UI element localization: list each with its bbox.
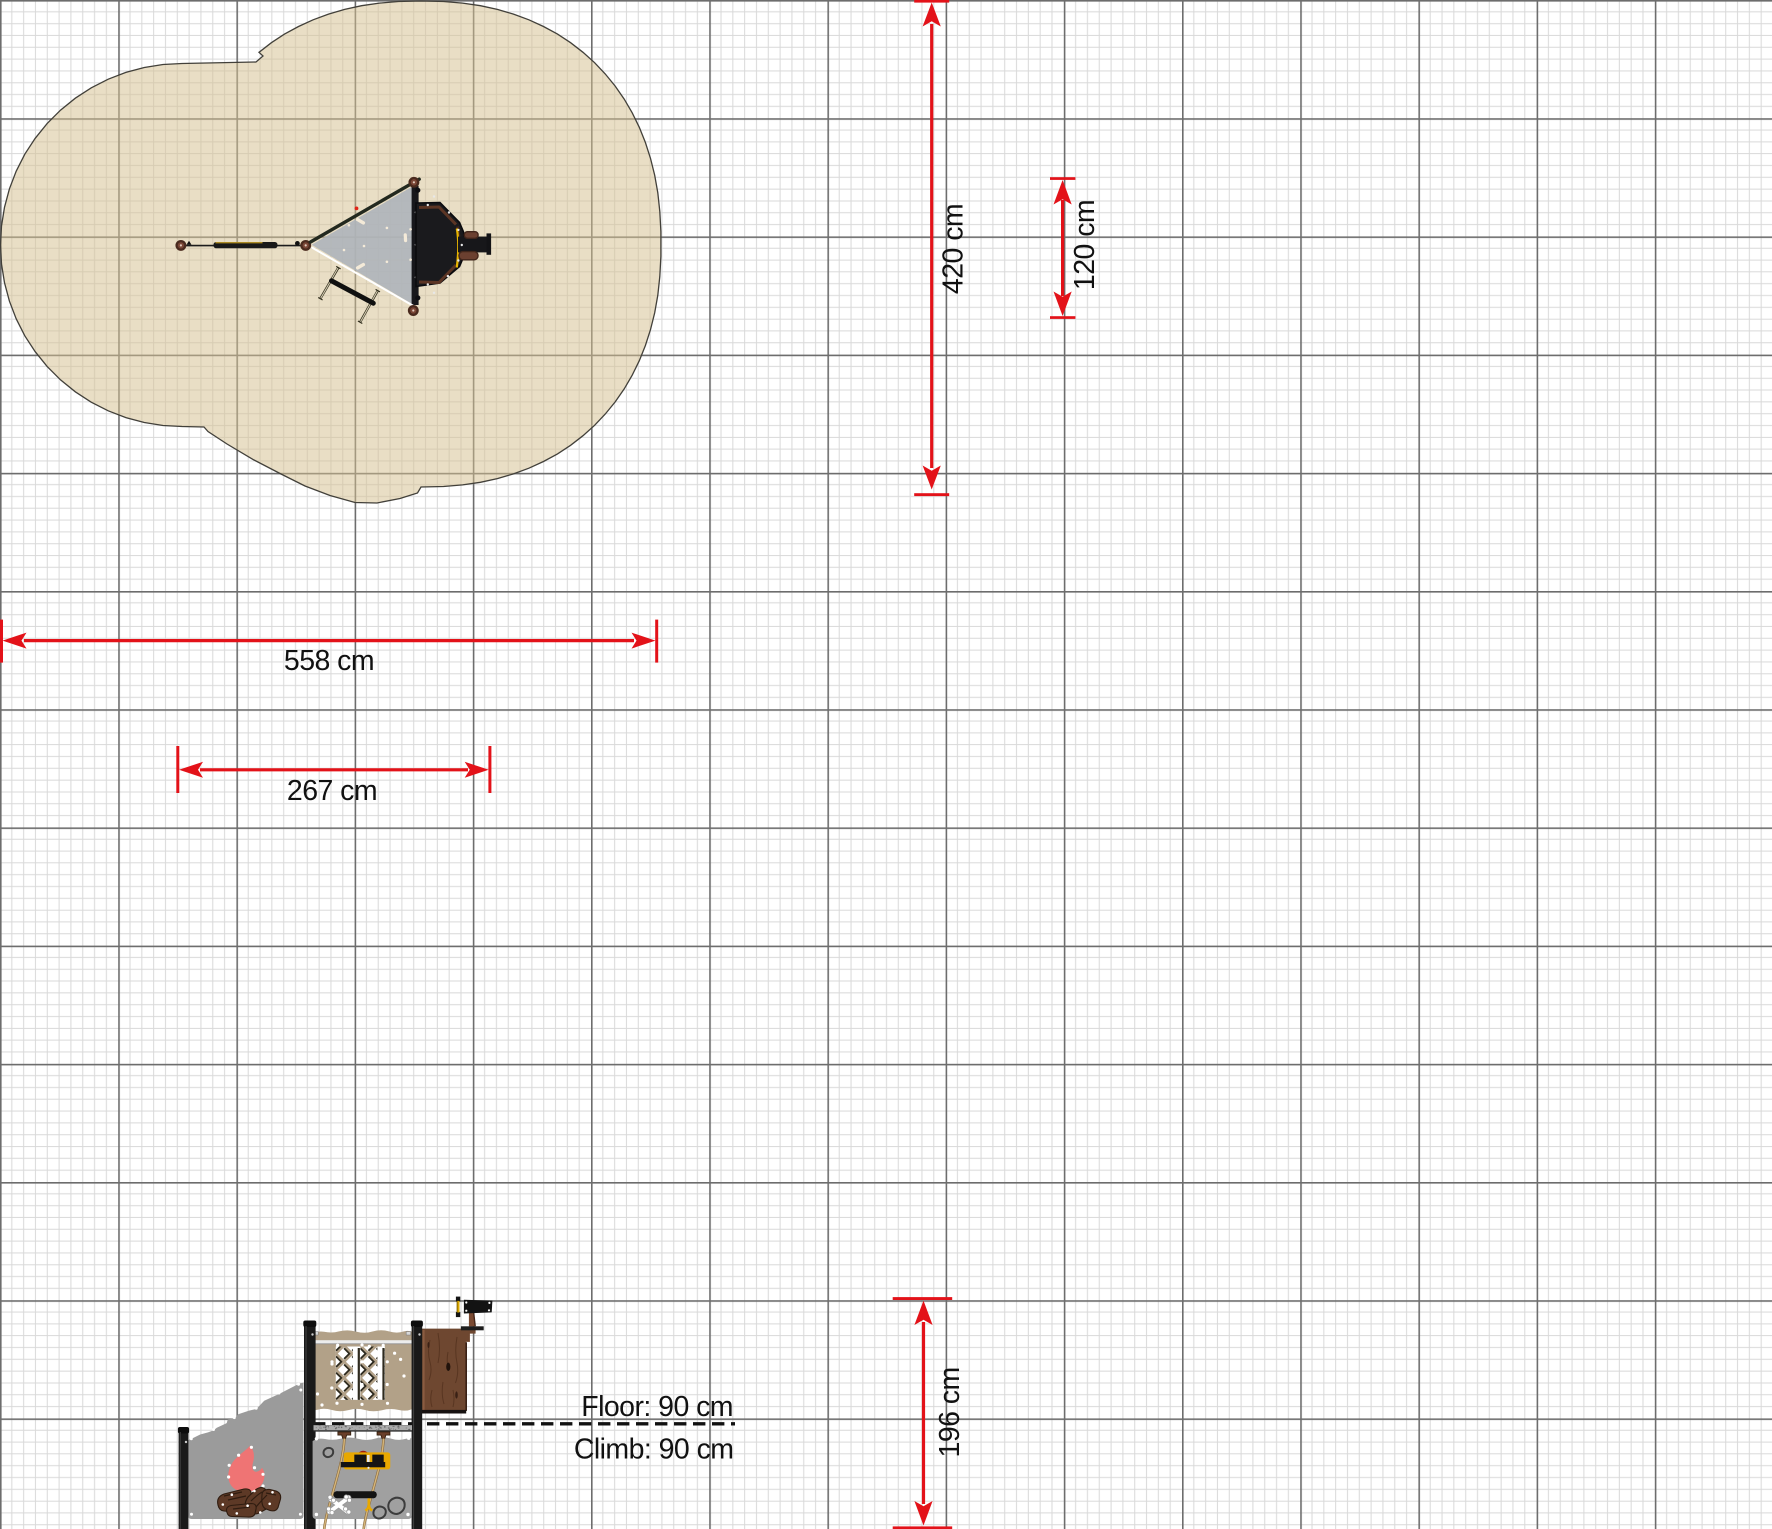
svg-text:196 cm: 196 cm (934, 1367, 966, 1457)
svg-text:267 cm: 267 cm (287, 775, 377, 807)
svg-text:120 cm: 120 cm (1069, 200, 1101, 290)
svg-text:558 cm: 558 cm (284, 645, 374, 677)
svg-text:420 cm: 420 cm (938, 204, 970, 294)
svg-text:Floor: 90 cm: Floor: 90 cm (581, 1391, 733, 1423)
svg-text:Climb: 90 cm: Climb: 90 cm (574, 1434, 734, 1466)
